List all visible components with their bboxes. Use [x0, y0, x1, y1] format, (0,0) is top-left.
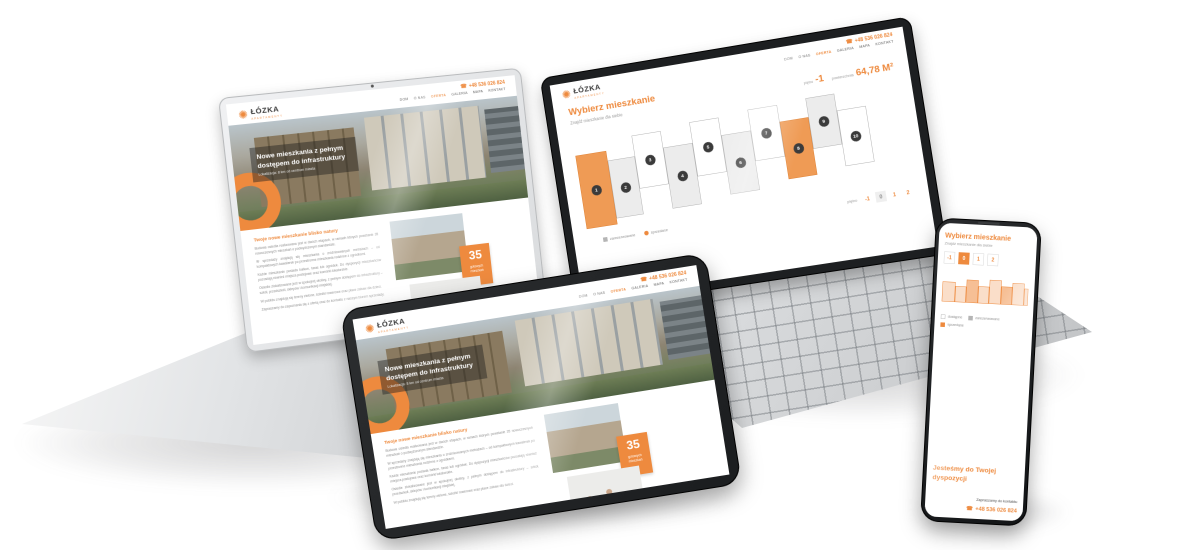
nav-item-dom[interactable]: DOM — [400, 98, 409, 102]
hero-photo-building — [660, 295, 710, 360]
unit-number: 8 — [792, 142, 804, 154]
legend-available: dostępne — [941, 314, 963, 320]
phone-icon: ☎ — [460, 84, 467, 90]
gear-logo-icon: ✺ — [238, 109, 249, 121]
plan-legend: dostępne zarezerwowane sprzedane — [940, 314, 1027, 331]
hero-photo-building — [484, 106, 525, 173]
phone-icon: ☎ — [640, 276, 648, 283]
floor-page-2[interactable]: 2 — [902, 186, 914, 198]
hero-photo-building — [364, 106, 486, 190]
floor-pagination-label: piętro — [847, 198, 858, 204]
phone: Wybierz mieszkanie Znajdź mieszkanie dla… — [920, 217, 1042, 526]
nav-item-oferta[interactable]: OFERTA — [431, 94, 446, 99]
unit-number: 5 — [702, 141, 714, 153]
legend-reserved: zarezerwowane — [603, 233, 636, 242]
nav-item-oferta[interactable]: OFERTA — [610, 288, 626, 294]
nav-item-mapa[interactable]: MAPA — [653, 282, 664, 287]
floor-page-2[interactable]: 2 — [987, 254, 999, 267]
available-marker — [941, 314, 946, 319]
phone-display: Wybierz mieszkanie Znajdź mieszkanie dla… — [924, 223, 1037, 522]
contact-phone-link[interactable]: ☎ +48 536 026 824 — [931, 504, 1017, 514]
nav-item-galeria[interactable]: GALERIA — [631, 284, 648, 290]
building-photo — [544, 403, 627, 473]
webcam-dot — [371, 84, 374, 87]
floor-page-minus1[interactable]: -1 — [861, 193, 873, 205]
tablet-display: ✺ ŁÓZKA APARTAMENTY ☎ +48 536 026 824 DO… — [353, 265, 730, 529]
unit-number: 7 — [760, 127, 772, 139]
nav-item-dom[interactable]: DOM — [579, 294, 588, 299]
floor-pagination: -1 0 1 2 — [944, 251, 1031, 267]
area-label: powierzchnia — [832, 73, 855, 81]
unit-number: 9 — [818, 115, 830, 127]
contact-heading: Jesteśmy do Twojej dyspozycji — [932, 463, 1019, 486]
floor-page-1[interactable]: 1 — [973, 253, 985, 266]
units-count-label: gotowych mieszkań — [461, 262, 492, 275]
phone-icon: ☎ — [845, 39, 853, 46]
floor-page-minus1[interactable]: -1 — [944, 251, 956, 264]
orange-ring-decoration — [690, 516, 729, 529]
contact-section: Jesteśmy do Twojej dyspozycji Zapraszamy… — [931, 463, 1019, 514]
legend-reserved: zarezerwowane — [968, 316, 1000, 322]
reserved-marker — [603, 237, 608, 242]
legend-sold: sprzedane — [940, 322, 964, 328]
contact-subtext: Zapraszamy do kontaktu — [931, 495, 1017, 504]
contact-phone-number: +48 536 026 824 — [975, 506, 1017, 514]
floor-value: -1 — [814, 73, 824, 85]
reserved-marker — [968, 316, 973, 321]
nav-item-mapa[interactable]: MAPA — [473, 90, 484, 94]
nav-item-mapa[interactable]: MAPA — [859, 44, 870, 49]
floor-page-1[interactable]: 1 — [888, 188, 900, 200]
floor-label: piętro — [803, 79, 813, 85]
gear-logo-icon: ✺ — [364, 323, 375, 335]
unit-number: 2 — [620, 181, 632, 193]
units-count-number: 35 — [460, 248, 491, 263]
phone-icon: ☎ — [966, 506, 973, 512]
floor-plan-unit[interactable]: 10 — [837, 106, 875, 166]
nav-item-o-nas[interactable]: O NAS — [414, 96, 426, 101]
nav-item-oferta[interactable]: OFERTA — [816, 50, 832, 56]
building-photo — [390, 213, 469, 280]
legend-sold: sprzedane — [644, 228, 668, 236]
sold-marker — [940, 322, 945, 327]
nav-item-galeria[interactable]: GALERIA — [451, 91, 468, 96]
unit-number: 6 — [735, 157, 747, 169]
gear-logo-icon: ✺ — [561, 89, 572, 101]
units-count-number: 35 — [617, 437, 649, 454]
nav-item-kontakt[interactable]: KONTAKT — [875, 40, 894, 46]
unit-number: 3 — [644, 154, 656, 166]
nav-item-galeria[interactable]: GALERIA — [837, 47, 854, 53]
unit-number: 10 — [850, 130, 862, 142]
nav-item-kontakt[interactable]: KONTAKT — [488, 88, 506, 93]
sold-marker — [644, 231, 649, 236]
floor-page-0[interactable]: 0 — [875, 191, 887, 203]
area-value: 64,78 M² — [855, 62, 894, 79]
nav-item-o-nas[interactable]: O NAS — [593, 291, 606, 296]
unit-number: 4 — [677, 170, 689, 182]
units-count-label: gotowych mieszkań — [619, 452, 651, 466]
nav-item-o-nas[interactable]: O NAS — [798, 54, 811, 59]
unit-number: 1 — [591, 184, 603, 196]
brand-logo[interactable]: ✺ ŁÓZKA APARTAMENTY — [238, 104, 284, 122]
laptop-right-display: ✺ ŁÓZKA APARTAMENTY ☎ +48 536 026 824 DO… — [550, 27, 938, 301]
nav-item-dom[interactable]: DOM — [784, 57, 793, 62]
floor-page-0[interactable]: 0 — [958, 252, 970, 265]
nav-item-kontakt[interactable]: KONTAKT — [669, 278, 687, 284]
mini-floor-plan[interactable] — [941, 274, 1029, 309]
